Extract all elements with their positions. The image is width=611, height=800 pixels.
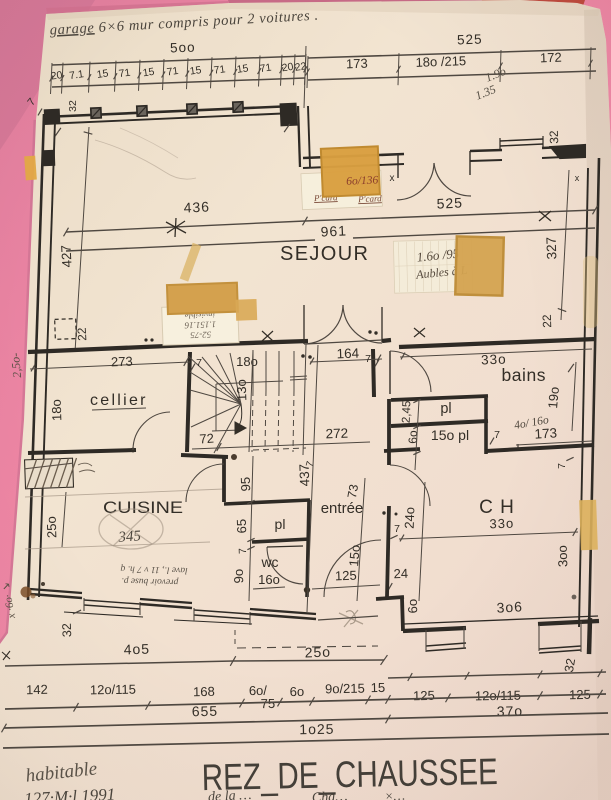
svg-text:95: 95	[238, 477, 253, 492]
svg-text:6o: 6o	[405, 599, 420, 614]
svg-text:7: 7	[494, 429, 500, 441]
svg-text:18o: 18o	[49, 399, 65, 421]
svg-text:24: 24	[393, 566, 408, 581]
svg-text:7: 7	[394, 523, 400, 535]
svg-text:9o/215: 9o/215	[325, 681, 365, 697]
svg-text:6o/136: 6o/136	[346, 174, 379, 187]
svg-text:22: 22	[540, 314, 554, 328]
svg-text:22: 22	[75, 327, 90, 341]
svg-text:9o: 9o	[231, 569, 246, 584]
svg-text:7: 7	[556, 463, 568, 469]
svg-text:16o: 16o	[258, 572, 280, 587]
svg-text:3o6: 3o6	[496, 598, 523, 615]
svg-text:entrée: entrée	[321, 500, 364, 517]
svg-text:7: 7	[365, 353, 371, 365]
svg-text:15: 15	[189, 64, 202, 78]
svg-text:33o: 33o	[489, 516, 514, 532]
svg-text:173: 173	[346, 56, 368, 72]
svg-text:72: 72	[199, 431, 214, 447]
svg-text:Cha…: Cha…	[312, 789, 349, 800]
svg-text:173: 173	[534, 425, 557, 441]
svg-text:CUISINE: CUISINE	[103, 499, 183, 517]
svg-text:961: 961	[320, 222, 347, 239]
svg-text:15: 15	[371, 680, 386, 695]
svg-text:125: 125	[413, 688, 435, 703]
svg-text:71: 71	[118, 67, 131, 81]
svg-text:272: 272	[325, 426, 348, 442]
svg-text:13o: 13o	[234, 379, 250, 401]
svg-text:32: 32	[60, 623, 74, 637]
svg-text:142: 142	[26, 682, 48, 697]
svg-text:pl: pl	[275, 516, 286, 532]
svg-text:32: 32	[562, 657, 578, 673]
svg-text:24o: 24o	[402, 507, 418, 529]
svg-text:de la …: de la …	[208, 788, 252, 800]
svg-text:SEJOUR: SEJOUR	[280, 243, 368, 265]
svg-text:273: 273	[111, 354, 133, 370]
svg-text:172: 172	[540, 50, 562, 66]
svg-text:6o: 6o	[290, 684, 305, 699]
svg-text:25o: 25o	[44, 516, 60, 538]
svg-text:73: 73	[345, 483, 361, 499]
svg-text:25o: 25o	[304, 644, 331, 661]
svg-text:15: 15	[142, 66, 155, 80]
svg-text:65: 65	[234, 519, 249, 534]
svg-text:bains: bains	[502, 365, 547, 385]
svg-text:15: 15	[236, 62, 249, 76]
svg-text:15: 15	[96, 67, 109, 81]
svg-text:18o: 18o	[236, 354, 258, 369]
svg-text:19o: 19o	[545, 386, 562, 409]
svg-text:5oo: 5oo	[170, 39, 196, 55]
svg-text:525: 525	[457, 31, 483, 47]
svg-text:4o5: 4o5	[123, 641, 150, 658]
svg-text:32: 32	[67, 100, 79, 112]
svg-text:2,5o-: 2,5o-	[8, 352, 24, 378]
svg-text:327: 327	[544, 237, 560, 260]
svg-text:18o /215: 18o /215	[415, 53, 466, 70]
svg-text:pl: pl	[440, 401, 451, 417]
svg-text:71: 71	[213, 63, 226, 77]
svg-text:cellier: cellier	[90, 392, 146, 409]
svg-text:lave l., 11 v 7 h. q: lave l., 11 v 7 h. q	[120, 563, 188, 575]
svg-text:3oo: 3oo	[555, 545, 571, 567]
svg-text:prevoir buse p.: prevoir buse p.	[121, 575, 179, 587]
svg-text:71: 71	[166, 65, 179, 79]
svg-text:wc: wc	[260, 554, 278, 570]
svg-text:164: 164	[336, 346, 360, 362]
svg-text:2,45: 2,45	[401, 400, 414, 423]
svg-text:37o: 37o	[497, 703, 524, 719]
svg-text:1o25: 1o25	[299, 721, 334, 738]
svg-text:12o/115: 12o/115	[90, 682, 136, 698]
svg-text:7.1: 7.1	[69, 68, 85, 82]
svg-text:436: 436	[183, 198, 210, 215]
svg-text:6o: 6o	[406, 430, 420, 444]
svg-text:168: 168	[193, 684, 215, 699]
svg-text:7: 7	[237, 548, 249, 554]
svg-text:x: x	[575, 173, 580, 183]
svg-text:x: x	[390, 173, 395, 184]
svg-text:×…: ×…	[384, 787, 405, 800]
svg-text:525: 525	[436, 194, 463, 211]
svg-text:75: 75	[261, 696, 276, 711]
svg-text:655: 655	[192, 703, 219, 719]
svg-text:427: 427	[58, 245, 74, 268]
svg-text:7: 7	[196, 357, 202, 369]
svg-text:15o pl: 15o pl	[431, 427, 469, 443]
svg-text:125: 125	[335, 568, 357, 584]
svg-text:32: 32	[547, 130, 561, 144]
